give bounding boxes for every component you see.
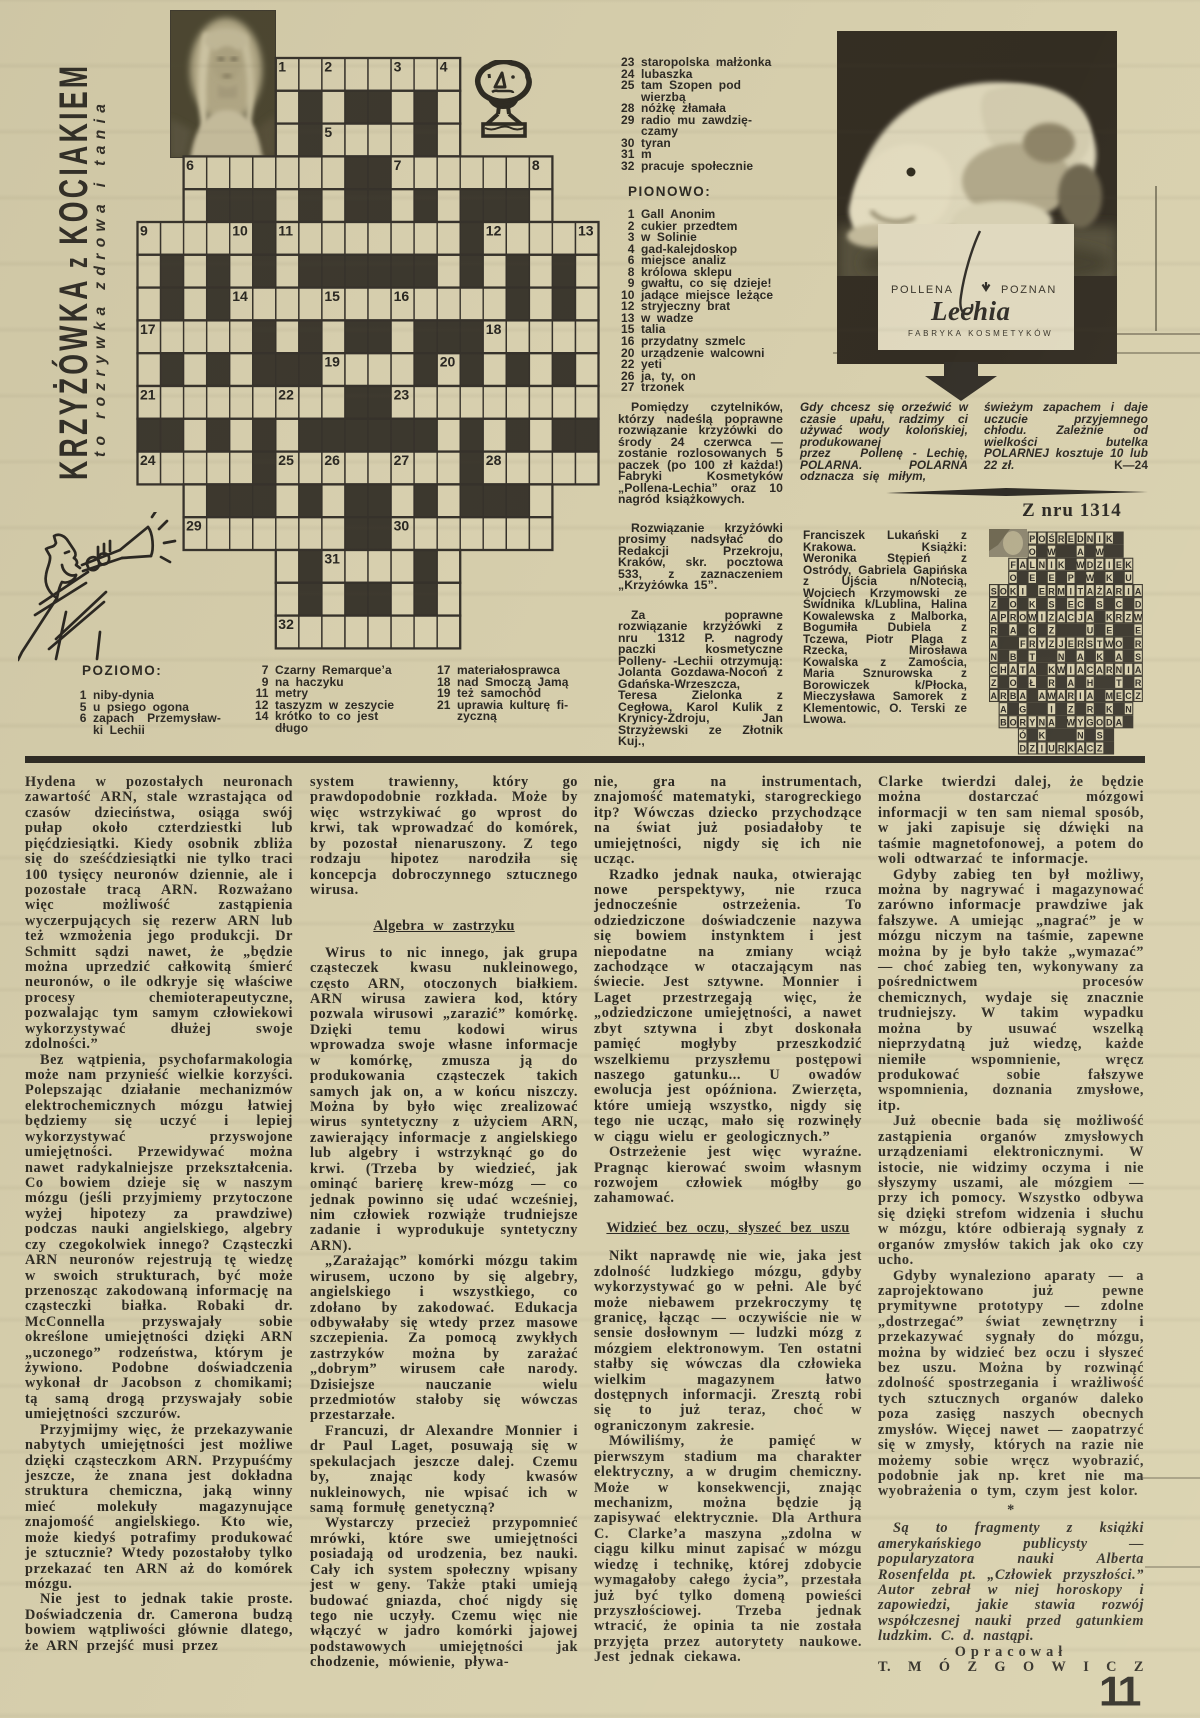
svg-text:8: 8 — [532, 157, 540, 173]
svg-text:Z: Z — [1068, 704, 1074, 714]
svg-text:B: B — [1010, 691, 1017, 701]
svg-text:29: 29 — [186, 518, 202, 534]
svg-text:Ś: Ś — [1048, 533, 1054, 544]
svg-text:21: 21 — [140, 387, 156, 403]
svg-text:S: S — [991, 586, 997, 596]
svg-text:R: R — [1019, 718, 1026, 728]
svg-text:S: S — [1097, 731, 1103, 741]
svg-text:A: A — [1058, 691, 1065, 701]
svg-text:9: 9 — [140, 223, 148, 239]
svg-text:T: T — [1030, 652, 1036, 662]
svg-text:A: A — [1058, 613, 1065, 623]
svg-text:POLLENA: POLLENA — [891, 284, 954, 296]
svg-text:O: O — [1010, 573, 1017, 583]
svg-text:C: C — [1125, 691, 1132, 701]
svg-text:N: N — [991, 652, 998, 662]
svg-text:Z: Z — [1049, 639, 1055, 649]
svg-text:A: A — [1116, 718, 1123, 728]
svg-text:K: K — [1106, 704, 1113, 714]
svg-text:A: A — [1077, 665, 1084, 675]
svg-text:D: D — [1135, 599, 1142, 609]
svg-text:A: A — [1096, 665, 1103, 675]
svg-text:C: C — [1077, 599, 1084, 609]
svg-text:Y: Y — [1039, 639, 1045, 649]
svg-text:G: G — [1086, 718, 1093, 728]
svg-text:O: O — [1010, 718, 1017, 728]
svg-text:P: P — [1000, 613, 1006, 623]
svg-text:K: K — [1039, 731, 1046, 741]
svg-text:7: 7 — [394, 157, 402, 173]
svg-text:M: M — [1106, 691, 1114, 701]
svg-text:A: A — [1000, 704, 1007, 714]
svg-text:10: 10 — [232, 223, 248, 239]
svg-text:T: T — [1020, 665, 1026, 675]
svg-text:A: A — [1039, 691, 1046, 701]
svg-text:I: I — [1127, 665, 1130, 675]
svg-text:R: R — [1048, 678, 1055, 688]
svg-text:22: 22 — [278, 387, 294, 403]
svg-text:K: K — [1058, 560, 1065, 570]
svg-text:27: 27 — [394, 452, 410, 468]
svg-text:Z: Z — [1030, 744, 1036, 754]
svg-text:L: L — [1030, 560, 1036, 570]
svg-text:O: O — [1000, 586, 1007, 596]
svg-text:J: J — [1078, 613, 1083, 623]
svg-text:T: T — [1097, 639, 1103, 649]
svg-text:D: D — [1019, 744, 1026, 754]
svg-text:A: A — [1135, 586, 1142, 596]
svg-text:R: R — [1058, 744, 1065, 754]
svg-text:N: N — [1039, 718, 1046, 728]
svg-text:A: A — [991, 613, 998, 623]
svg-text:I: I — [1127, 586, 1130, 596]
svg-text:J: J — [1059, 639, 1064, 649]
svg-text:R: R — [1068, 691, 1075, 701]
svg-text:A: A — [1029, 665, 1036, 675]
svg-text:31: 31 — [324, 551, 340, 567]
svg-text:K: K — [1106, 613, 1113, 623]
svg-text:W: W — [1057, 665, 1066, 675]
svg-text:A: A — [1116, 652, 1123, 662]
svg-text:R: R — [1010, 613, 1017, 623]
svg-text:R: R — [1058, 534, 1065, 544]
svg-text:O: O — [1038, 534, 1045, 544]
svg-text:B: B — [1010, 652, 1017, 662]
svg-text:A: A — [1077, 744, 1084, 754]
svg-text:D: D — [1087, 560, 1094, 570]
svg-text:E: E — [1029, 573, 1035, 583]
svg-text:C: C — [1068, 613, 1075, 623]
svg-text:12: 12 — [486, 223, 502, 239]
svg-text:O: O — [1096, 718, 1103, 728]
svg-text:Z: Z — [991, 599, 997, 609]
svg-text:A: A — [1135, 665, 1142, 675]
svg-text:3: 3 — [394, 59, 402, 75]
svg-text:P: P — [1029, 534, 1035, 544]
svg-text:30: 30 — [394, 518, 410, 534]
svg-text:K: K — [1010, 586, 1017, 596]
svg-text:T: T — [1078, 586, 1084, 596]
svg-text:F: F — [1010, 560, 1016, 570]
svg-text:Z: Z — [991, 678, 997, 688]
svg-text:Lechia: Lechia — [930, 296, 1010, 326]
svg-text:K: K — [1106, 573, 1113, 583]
svg-text:I: I — [1050, 560, 1053, 570]
svg-text:C: C — [1029, 626, 1036, 636]
svg-text:11: 11 — [278, 223, 293, 239]
svg-text:A: A — [1019, 560, 1026, 570]
svg-text:E: E — [1068, 534, 1074, 544]
svg-text:Z: Z — [1135, 691, 1141, 701]
svg-text:1: 1 — [278, 59, 286, 75]
svg-text:A: A — [1048, 718, 1055, 728]
svg-text:A: A — [1106, 586, 1113, 596]
svg-text:C: C — [1087, 744, 1094, 754]
svg-text:K: K — [1048, 665, 1055, 675]
svg-text:14: 14 — [232, 288, 248, 304]
svg-text:O: O — [1115, 639, 1122, 649]
svg-text:R: R — [991, 626, 998, 636]
svg-text:Y: Y — [1077, 718, 1083, 728]
svg-text:K: K — [1096, 652, 1103, 662]
svg-text:K: K — [1029, 599, 1036, 609]
svg-text:A: A — [1010, 626, 1017, 636]
svg-text:W: W — [1067, 718, 1076, 728]
svg-text:W: W — [1047, 691, 1056, 701]
svg-text:Ż: Ż — [1097, 586, 1103, 596]
svg-text:R: R — [1077, 639, 1084, 649]
svg-text:R: R — [1087, 704, 1094, 714]
svg-text:C: C — [991, 665, 998, 675]
svg-text:32: 32 — [278, 616, 294, 632]
svg-text:O: O — [1010, 599, 1017, 609]
svg-text:I: I — [1041, 744, 1044, 754]
svg-text:Z: Z — [1097, 560, 1103, 570]
svg-text:Z: Z — [1097, 744, 1103, 754]
svg-text:I: I — [1021, 586, 1024, 596]
svg-text:O: O — [1019, 613, 1026, 623]
svg-text:A: A — [991, 639, 998, 649]
svg-text:A: A — [1087, 586, 1094, 596]
svg-text:24: 24 — [140, 452, 156, 468]
svg-text:S: S — [1097, 599, 1103, 609]
svg-text:F: F — [1020, 639, 1026, 649]
svg-text:A: A — [1087, 613, 1094, 623]
svg-text:K: K — [1068, 744, 1075, 754]
svg-text:I: I — [1070, 586, 1073, 596]
svg-text:T: T — [1116, 678, 1122, 688]
svg-text:H: H — [1087, 678, 1094, 688]
svg-text:POZNAN: POZNAN — [1001, 284, 1057, 296]
svg-text:N: N — [1116, 665, 1123, 675]
svg-text:15: 15 — [324, 288, 340, 304]
svg-text:U: U — [1087, 626, 1094, 636]
svg-text:I: I — [1108, 560, 1111, 570]
svg-text:5: 5 — [324, 124, 332, 140]
svg-text:N: N — [1087, 534, 1094, 544]
svg-text:Z: Z — [1126, 613, 1132, 623]
svg-text:A: A — [1019, 691, 1026, 701]
svg-text:A: A — [1077, 547, 1084, 557]
svg-text:R: R — [1135, 639, 1142, 649]
svg-text:U: U — [1125, 573, 1132, 583]
svg-text:W: W — [1134, 613, 1143, 623]
svg-text:18: 18 — [486, 321, 502, 337]
svg-text:6: 6 — [186, 157, 194, 173]
svg-text:P: P — [1068, 573, 1074, 583]
svg-text:O: O — [1010, 678, 1017, 688]
svg-text:Y: Y — [1029, 718, 1035, 728]
svg-text:17: 17 — [140, 321, 156, 337]
svg-text:16: 16 — [394, 288, 410, 304]
svg-text:R: R — [1048, 586, 1055, 596]
svg-text:C: C — [1116, 599, 1123, 609]
svg-text:W: W — [1028, 613, 1037, 623]
svg-text:N: N — [1125, 704, 1132, 714]
svg-text:A: A — [1077, 652, 1084, 662]
svg-text:E: E — [1116, 691, 1122, 701]
svg-text:K: K — [1125, 560, 1132, 570]
svg-text:2: 2 — [324, 59, 332, 75]
svg-text:H: H — [1000, 665, 1007, 675]
svg-text:M: M — [1057, 586, 1065, 596]
svg-text:25: 25 — [278, 452, 294, 468]
svg-text:R: R — [1029, 639, 1036, 649]
svg-text:K: K — [1106, 534, 1113, 544]
svg-text:Z: Z — [1049, 626, 1055, 636]
svg-text:Ó: Ó — [1019, 730, 1026, 741]
svg-text:E: E — [1068, 639, 1074, 649]
svg-text:26: 26 — [324, 452, 340, 468]
svg-text:13: 13 — [578, 223, 594, 239]
svg-text:19: 19 — [324, 354, 340, 370]
svg-text:S: S — [1135, 652, 1141, 662]
svg-text:R: R — [1116, 613, 1123, 623]
svg-text:28: 28 — [486, 452, 502, 468]
svg-text:B: B — [1000, 718, 1007, 728]
svg-text:23: 23 — [394, 387, 410, 403]
svg-text:E: E — [1106, 626, 1112, 636]
svg-text:R: R — [1000, 691, 1007, 701]
svg-text:FABRYKA KOSMETYKÓW: FABRYKA KOSMETYKÓW — [908, 329, 1053, 338]
svg-text:E: E — [1068, 599, 1074, 609]
svg-text:N: N — [1058, 652, 1065, 662]
svg-text:E: E — [1048, 573, 1054, 583]
svg-text:S: S — [1048, 599, 1054, 609]
svg-text:W: W — [1095, 547, 1104, 557]
svg-text:G: G — [1019, 704, 1026, 714]
svg-text:I: I — [1041, 613, 1044, 623]
svg-text:D: D — [1106, 718, 1113, 728]
svg-text:N: N — [1039, 560, 1046, 570]
svg-text:I: I — [1070, 665, 1073, 675]
svg-text:O: O — [1029, 547, 1036, 557]
svg-text:R: R — [1106, 665, 1113, 675]
svg-text:N: N — [1077, 731, 1084, 741]
svg-text:E: E — [1039, 586, 1045, 596]
svg-text:A: A — [991, 691, 998, 701]
svg-text:A: A — [1010, 665, 1017, 675]
svg-text:I: I — [1098, 534, 1101, 544]
svg-text:W: W — [1076, 560, 1085, 570]
svg-text:W: W — [1086, 573, 1095, 583]
svg-text:Ł: Ł — [1030, 678, 1036, 688]
svg-text:R: R — [1116, 586, 1123, 596]
svg-text:4: 4 — [440, 59, 448, 75]
svg-text:A: A — [1068, 678, 1075, 688]
svg-text:I: I — [1079, 691, 1082, 701]
svg-text:I: I — [1050, 704, 1053, 714]
svg-text:R: R — [1135, 678, 1142, 688]
svg-text:A: A — [1087, 691, 1094, 701]
svg-text:W: W — [1105, 639, 1114, 649]
svg-text:E: E — [1135, 626, 1141, 636]
svg-text:W: W — [1047, 547, 1056, 557]
svg-text:Z: Z — [1049, 613, 1055, 623]
svg-text:U: U — [1048, 744, 1055, 754]
svg-text:20: 20 — [440, 354, 456, 370]
svg-text:S: S — [1087, 639, 1093, 649]
svg-text:E: E — [1116, 560, 1122, 570]
svg-text:C: C — [1087, 665, 1094, 675]
svg-text:D: D — [1077, 534, 1084, 544]
